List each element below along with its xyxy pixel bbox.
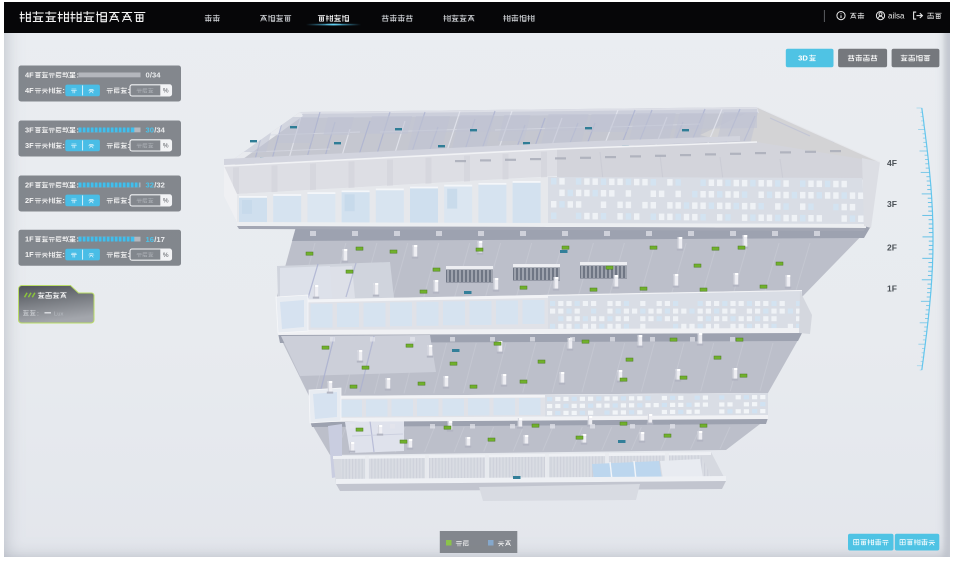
svg-text::: : xyxy=(128,143,130,150)
svg-text::: : xyxy=(77,183,79,190)
svg-text:%: % xyxy=(163,143,169,150)
svg-text:30: 30 xyxy=(146,126,154,135)
svg-text::: : xyxy=(128,252,130,259)
svg-text::: : xyxy=(63,88,65,95)
svg-text:16: 16 xyxy=(146,235,154,244)
svg-text:2F: 2F xyxy=(887,242,897,252)
svg-text:3F: 3F xyxy=(25,126,34,135)
svg-text:1F: 1F xyxy=(25,250,34,259)
svg-text:2F: 2F xyxy=(25,181,34,190)
svg-text::: : xyxy=(77,237,79,244)
svg-text::: : xyxy=(77,73,79,80)
svg-text:4F: 4F xyxy=(25,71,34,80)
svg-text:%: % xyxy=(163,252,169,259)
svg-text::: : xyxy=(37,310,39,317)
svg-text:1F: 1F xyxy=(887,283,897,293)
svg-text:4F: 4F xyxy=(887,158,897,168)
svg-text::: : xyxy=(63,198,65,205)
svg-text:/34: /34 xyxy=(154,126,165,135)
svg-text::: : xyxy=(128,198,130,205)
svg-text:3D: 3D xyxy=(798,54,808,63)
svg-text::: : xyxy=(63,143,65,150)
svg-text:32: 32 xyxy=(146,181,154,190)
svg-text:Lux: Lux xyxy=(54,311,63,317)
svg-text:3F: 3F xyxy=(887,199,897,209)
svg-text:/17: /17 xyxy=(154,235,165,244)
svg-text:4F: 4F xyxy=(25,86,34,95)
svg-text:3F: 3F xyxy=(25,141,34,150)
svg-text::: : xyxy=(63,252,65,259)
svg-text:ailsa: ailsa xyxy=(888,11,905,20)
svg-text:%: % xyxy=(163,198,169,205)
svg-text::: : xyxy=(77,128,79,135)
svg-text:/34: /34 xyxy=(150,71,161,80)
svg-text:/32: /32 xyxy=(154,181,165,190)
svg-text:1F: 1F xyxy=(25,235,34,244)
svg-text:2F: 2F xyxy=(25,196,34,205)
svg-text::: : xyxy=(128,88,130,95)
svg-text:%: % xyxy=(163,88,169,95)
